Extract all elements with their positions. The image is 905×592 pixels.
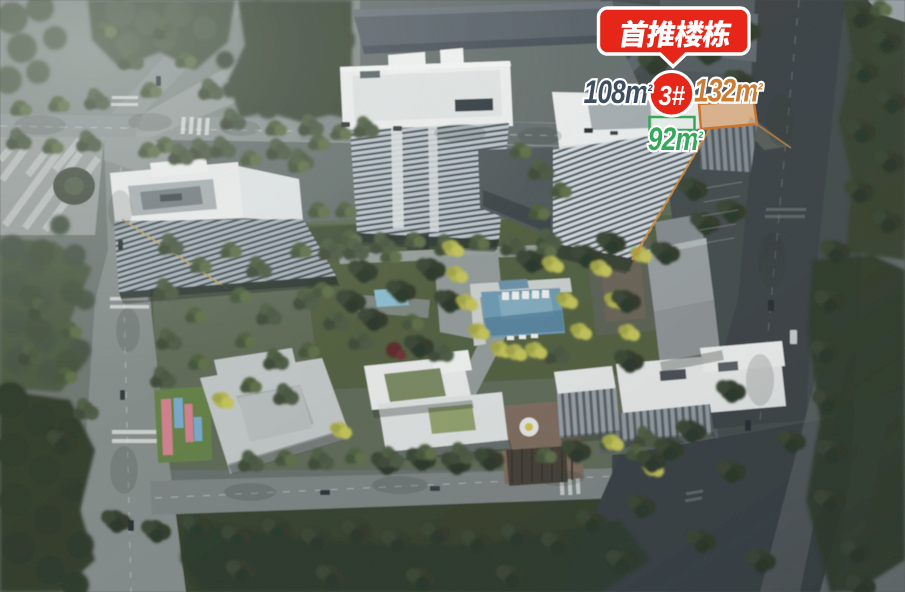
svg-text:92m²: 92m² [648,123,703,158]
svg-text:3#: 3# [659,79,686,111]
svg-text:132m²: 132m² [694,74,763,109]
svg-text:108m²: 108m² [584,76,653,111]
